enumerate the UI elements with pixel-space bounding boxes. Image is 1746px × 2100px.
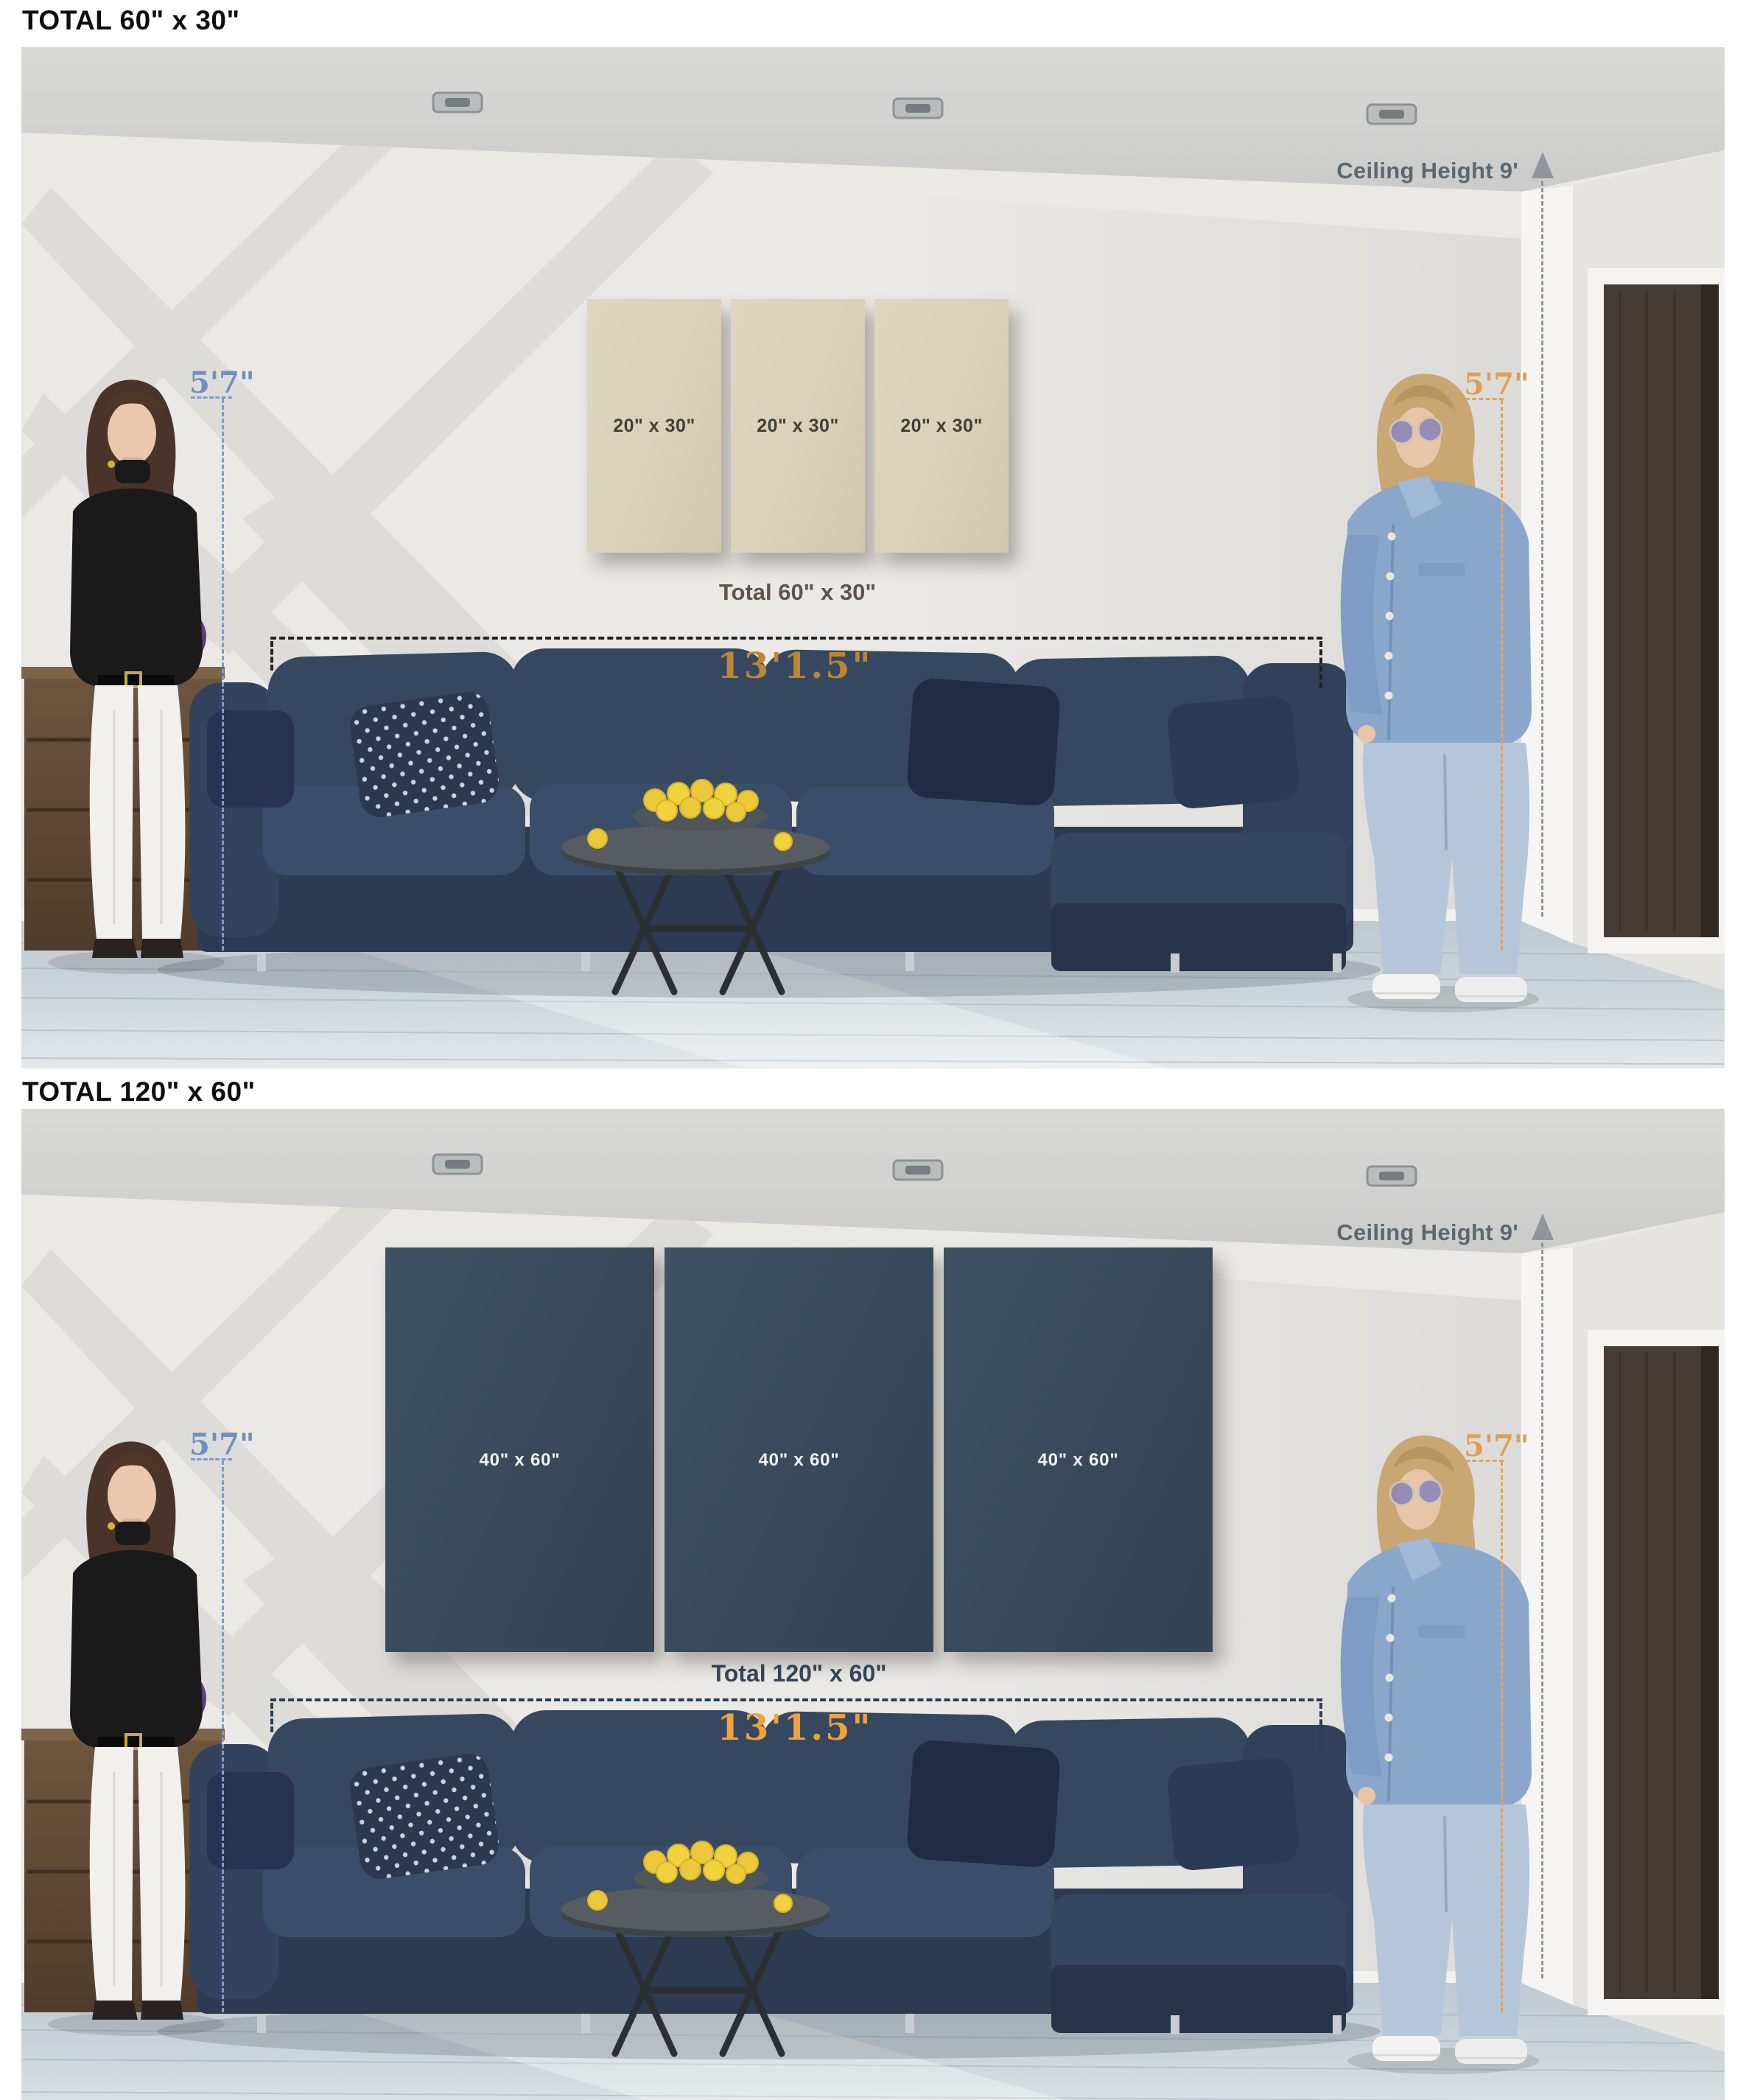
room-illustration [21, 47, 1725, 1068]
panel-size-label: 40" x 60" [758, 1450, 839, 1471]
panel-size-label: 20" x 30" [613, 416, 695, 437]
height-underline [1465, 1460, 1504, 1462]
triptych-total-caption: Total 120" x 60" [385, 1660, 1213, 1687]
room-preview-60x30: 20" x 30" 20" x 30" 20" x 30" Total 60" … [21, 47, 1725, 1068]
height-label: 5'7" [1464, 367, 1529, 402]
height-dashed-line [222, 1460, 224, 2012]
sofa-width-label: 13'1.5" [316, 645, 1274, 687]
canvas-panel-2: 20" x 30" [731, 299, 865, 553]
canvas-panel-3: 20" x 30" [874, 299, 1009, 553]
ceiling-height-label: Ceiling Height 9' [1296, 158, 1518, 184]
width-tick-right [1319, 641, 1322, 688]
height-underline [191, 396, 232, 399]
section-title-60x30: TOTAL 60" x 30" [22, 4, 240, 37]
panel-size-label: 20" x 30" [900, 416, 983, 437]
canvas-panel-1: 40" x 60" [385, 1247, 654, 1652]
section-title-120x60: TOTAL 120" x 60" [22, 1076, 256, 1108]
height-dashed-line [1501, 400, 1503, 951]
width-dashed-line [270, 637, 1322, 640]
canvas-panel-3: 40" x 60" [944, 1247, 1213, 1652]
height-dashed-line [1501, 1462, 1503, 2012]
height-label: 5'7" [189, 1427, 255, 1462]
ceiling-dashed-line [1541, 1243, 1543, 1978]
height-label: 5'7" [1464, 1429, 1529, 1463]
height-underline [191, 1458, 232, 1460]
canvas-panel-2: 40" x 60" [665, 1247, 933, 1652]
panel-size-label: 40" x 60" [479, 1450, 560, 1471]
arrow-up-icon [1532, 1214, 1554, 1240]
ceiling-dashed-line [1541, 181, 1543, 917]
canvas-triptych-120x60: 40" x 60" 40" x 60" 40" x 60" [385, 1247, 1213, 1652]
canvas-triptych-60x30: 20" x 30" 20" x 30" 20" x 30" [587, 299, 1009, 553]
width-dashed-line [270, 1698, 1322, 1701]
width-tick-right [1319, 1703, 1322, 1750]
height-underline [1465, 398, 1504, 400]
height-label: 5'7" [189, 365, 255, 400]
sofa-width-label: 13'1.5" [316, 1707, 1274, 1749]
width-tick-left [270, 641, 273, 671]
canvas-panel-1: 20" x 30" [587, 299, 721, 553]
height-dashed-line [222, 399, 224, 951]
panel-size-label: 20" x 30" [757, 416, 839, 437]
panel-size-label: 40" x 60" [1037, 1450, 1118, 1471]
ceiling-height-label: Ceiling Height 9' [1296, 1219, 1518, 1246]
width-tick-left [270, 1703, 273, 1732]
room-preview-120x60: 40" x 60" 40" x 60" 40" x 60" Total 120"… [21, 1109, 1725, 2100]
triptych-total-caption: Total 60" x 30" [587, 579, 1008, 606]
arrow-up-icon [1532, 152, 1554, 178]
